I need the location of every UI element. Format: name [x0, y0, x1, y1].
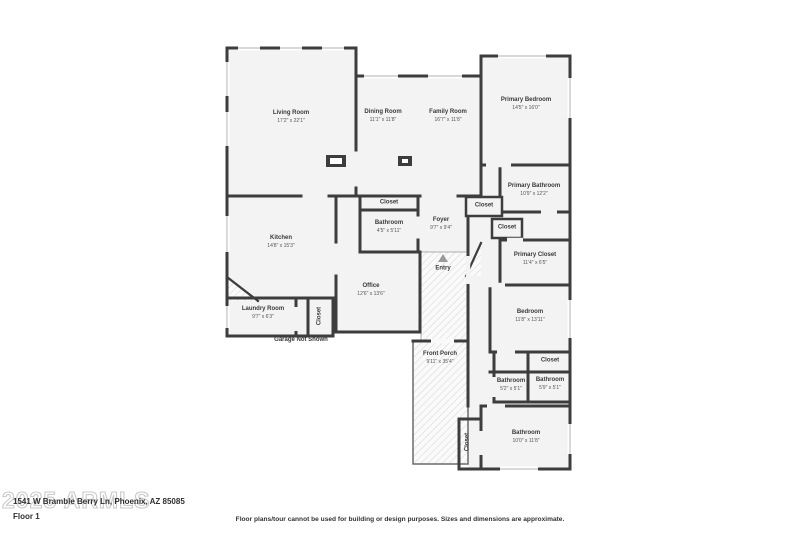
- room-name: Laundry Room: [242, 306, 284, 313]
- room-label-kitchen: Kitchen 14'8" x 15'3": [267, 235, 294, 249]
- room-dims: 11'1" x 11'8": [364, 117, 401, 123]
- garage-note: Garage Not Shown: [274, 337, 328, 343]
- room-dims: 5'9" x 5'1": [536, 385, 564, 391]
- room-label-primary-bathroom: Primary Bathroom 10'9" x 12'2": [508, 183, 560, 197]
- room-label-primary-closet: Primary Closet 11'4" x 6'5": [514, 252, 556, 266]
- room-name: Closet: [498, 224, 516, 231]
- room-label-closet: Closet: [380, 199, 398, 206]
- room-label-dining-room: Dining Room 11'1" x 11'8": [364, 109, 401, 123]
- room-name: Kitchen: [267, 235, 294, 242]
- room-label-bedroom: Bedroom 11'8" x 13'11": [515, 309, 544, 323]
- room-label-bathroom: Bathroom 10'0" x 11'8": [512, 430, 540, 444]
- room-label-office: Office 12'6" x 13'6": [357, 283, 384, 297]
- room-name: Bathroom: [512, 430, 540, 437]
- room-name: Family Room: [429, 109, 467, 116]
- room-label-living-room: Living Room 17'2" x 22'1": [273, 110, 309, 124]
- room-name: Primary Closet: [514, 252, 556, 259]
- room-label-laundry-room: Laundry Room 9'7" x 6'3": [242, 306, 284, 320]
- room-dims: 14'5" x 16'0": [501, 105, 551, 111]
- room-name: Bathroom: [536, 377, 564, 384]
- room-name: Closet: [475, 202, 493, 209]
- floorplan-page: Living Room 17'2" x 22'1" Dining Room 11…: [0, 0, 800, 533]
- room-dims: 12'6" x 13'6": [357, 291, 384, 297]
- room-label-primary-bedroom: Primary Bedroom 14'5" x 16'0": [501, 97, 551, 111]
- room-label-bathroom: Bathroom 5'2" x 5'1": [497, 378, 525, 392]
- room-name: Closet: [316, 307, 323, 325]
- room-name: Closet: [464, 433, 471, 451]
- room-name: Front Porch: [423, 351, 457, 358]
- floorplan-drawing: [0, 0, 800, 533]
- room-name: Dining Room: [364, 109, 401, 116]
- room-dims: 11'8" x 13'11": [515, 317, 544, 323]
- room-name: Foyer: [430, 217, 452, 224]
- room-dims: 10'9" x 12'2": [508, 191, 560, 197]
- room-dims: 9'7" x 6'3": [242, 314, 284, 320]
- floor-label: Floor 1: [13, 512, 40, 521]
- room-dims: 9'7" x 9'4": [430, 225, 452, 231]
- room-label-front-porch: Front Porch 9'11" x 35'4": [423, 351, 457, 365]
- room-name: Primary Bedroom: [501, 97, 551, 104]
- room-name: Office: [357, 283, 384, 290]
- room-dims: 10'0" x 11'8": [512, 438, 540, 444]
- room-name: Entry: [435, 265, 450, 272]
- disclaimer-text: Floor plans/tour cannot be used for buil…: [0, 516, 800, 523]
- room-name: Primary Bathroom: [508, 183, 560, 190]
- room-label-closet: Closet: [316, 307, 323, 325]
- room-dims: 9'11" x 35'4": [423, 359, 457, 365]
- room-label-closet: Closet: [464, 433, 471, 451]
- room-dims: 14'8" x 15'3": [267, 243, 294, 249]
- property-address: 1541 W Bramble Berry Ln, Phoenix, AZ 850…: [13, 497, 185, 506]
- room-label-foyer: Foyer 9'7" x 9'4": [430, 217, 452, 231]
- room-label-closet: Closet: [475, 202, 493, 209]
- room-name: Bathroom: [497, 378, 525, 385]
- room-label-bathroom: Bathroom 5'9" x 5'1": [536, 377, 564, 391]
- room-name: Bathroom: [375, 220, 403, 227]
- room-name: Living Room: [273, 110, 309, 117]
- room-dims: 17'2" x 22'1": [273, 118, 309, 124]
- entry-label: Entry: [435, 265, 450, 272]
- room-label-bathroom: Bathroom 4'5" x 5'11": [375, 220, 403, 234]
- room-label-closet: Closet: [498, 224, 516, 231]
- room-label-family-room: Family Room 16'7" x 11'8": [429, 109, 467, 123]
- room-dims: 16'7" x 11'8": [429, 117, 467, 123]
- room-name: Closet: [541, 357, 559, 364]
- room-name: Bedroom: [515, 309, 544, 316]
- room-name: Closet: [380, 199, 398, 206]
- room-dims: 11'4" x 6'5": [514, 260, 556, 266]
- room-dims: 5'2" x 5'1": [497, 386, 525, 392]
- room-label-closet: Closet: [541, 357, 559, 364]
- room-dims: 4'5" x 5'11": [375, 228, 403, 234]
